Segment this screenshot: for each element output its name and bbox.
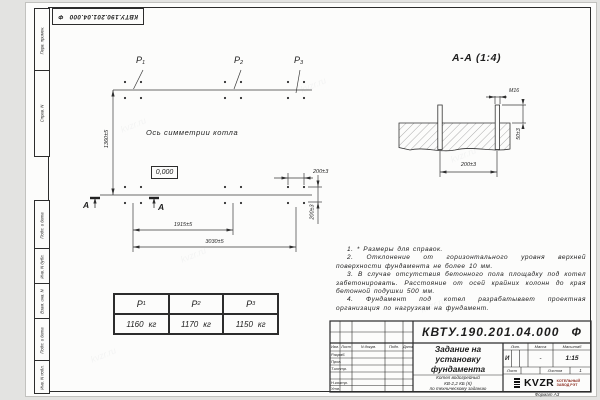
plan-load-point-p3: P3 [294,55,303,66]
col-header-data: Дата [403,345,413,349]
drawing-notes: 1. * Размеры для справок. 2. Отклонение … [336,246,586,313]
load-unit: кг [203,320,211,329]
mass-value: - [528,352,553,365]
load-table: P1 P2 P3 1160кг 1170кг 1150кг [113,293,279,335]
p1-index: 1 [142,60,145,66]
scale-value: 1:15 [553,352,591,365]
drawing-sheet-page: kvzr.ru kvzr.ru kvzr.ru kvzr.ru kvzr.ru … [0,0,600,400]
col-header-izm: Изм. [331,345,340,349]
col-header-list: Лист [340,345,352,349]
sheets-label: Листов [540,368,570,373]
product-name: Котел водогрейный КВ-2,2 КБ (К) по техни… [413,375,503,392]
col-header-podp: Подп. [385,345,403,349]
dim-height-1360: 1360±5 [104,130,110,148]
section-letter-right: А [158,202,164,212]
p3-index: 3 [300,60,303,66]
load-table-header: P1 [114,294,169,314]
doc-number: КВТУ.190.201.04.000 Ф [413,321,591,343]
lit-header: Лит. [503,344,528,349]
load-value: 1160 [126,320,143,329]
kvzr-logo-caption: КОТЕЛЬНЫЙ ЗАВОД РЭТ [557,379,580,388]
header-index: 2 [197,301,200,307]
note-2: 2. Отклонение от горизонтального уровня … [336,254,586,271]
load-unit: кг [149,320,157,329]
kvzr-logo-icon [514,378,520,387]
sheet-label: Лист [503,368,521,373]
lit-value: И [503,352,511,365]
mass-header: Масса [528,344,553,349]
header-index: 1 [143,301,146,307]
boiler-symmetry-axis-label: Ось симметрии котла [146,128,238,137]
dim-bolt-spacing-y: 200±3 [310,204,316,219]
dim-bolt-protrusion-50: 50±3 [516,128,522,140]
load-table-value: 1170кг [169,314,224,334]
section-letter-left: А [83,200,89,210]
row-label-tkontr: Т.контр. [331,366,347,371]
p2-index: 2 [240,60,243,66]
elevation-mark: 0,000 [151,166,178,179]
load-unit: кг [258,320,266,329]
load-table-header: P2 [169,294,224,314]
note-3: 3. В случае отсутствия бетонного пола пл… [336,271,586,296]
section-view-title: А-А (1:4) [452,52,501,64]
format-label: Формат А3 [503,392,591,397]
dim-total-span-3030: 3030±5 [133,239,296,245]
row-label-utv: Утв. [331,386,340,391]
plan-load-point-p2: P2 [234,55,243,66]
plan-anchor-bolts [124,81,305,204]
thread-size-label-m16: М16 [509,88,519,94]
load-value: 1150 [236,320,253,329]
plan-load-point-p1: P1 [136,55,145,66]
header-index: 3 [252,301,255,307]
dim-section-bolt-spacing-200: 200±3 [440,162,497,168]
load-table-value: 1150кг [223,314,278,334]
drawing-title: Задание на установку фундамента [413,343,503,375]
doc-number-suffix: Ф [572,325,582,339]
load-table-header: P3 [223,294,278,314]
row-label-prov: Пров. [331,359,342,364]
load-value: 1170 [181,320,198,329]
note-4: 4. Фундамент под котел разрабатывает про… [336,296,586,313]
col-header-ndokum: N докум. [352,345,385,349]
dim-bolt-spacing-x: 200±3 [313,169,328,175]
sheets-count: 1 [570,368,591,373]
doc-number-text: КВТУ.190.201.04.000 [422,325,560,339]
dim-mid-span-1915: 1915±5 [133,222,233,228]
row-label-razrab: Разраб. [331,352,345,357]
scale-header: Масштаб [553,344,591,349]
load-table-value: 1160кг [114,314,169,334]
row-label-nkontr: Н.контр. [331,380,348,385]
kvzr-logo-text: KVZR [524,377,554,389]
company-logo-cell: KVZR КОТЕЛЬНЫЙ ЗАВОД РЭТ [503,374,591,392]
